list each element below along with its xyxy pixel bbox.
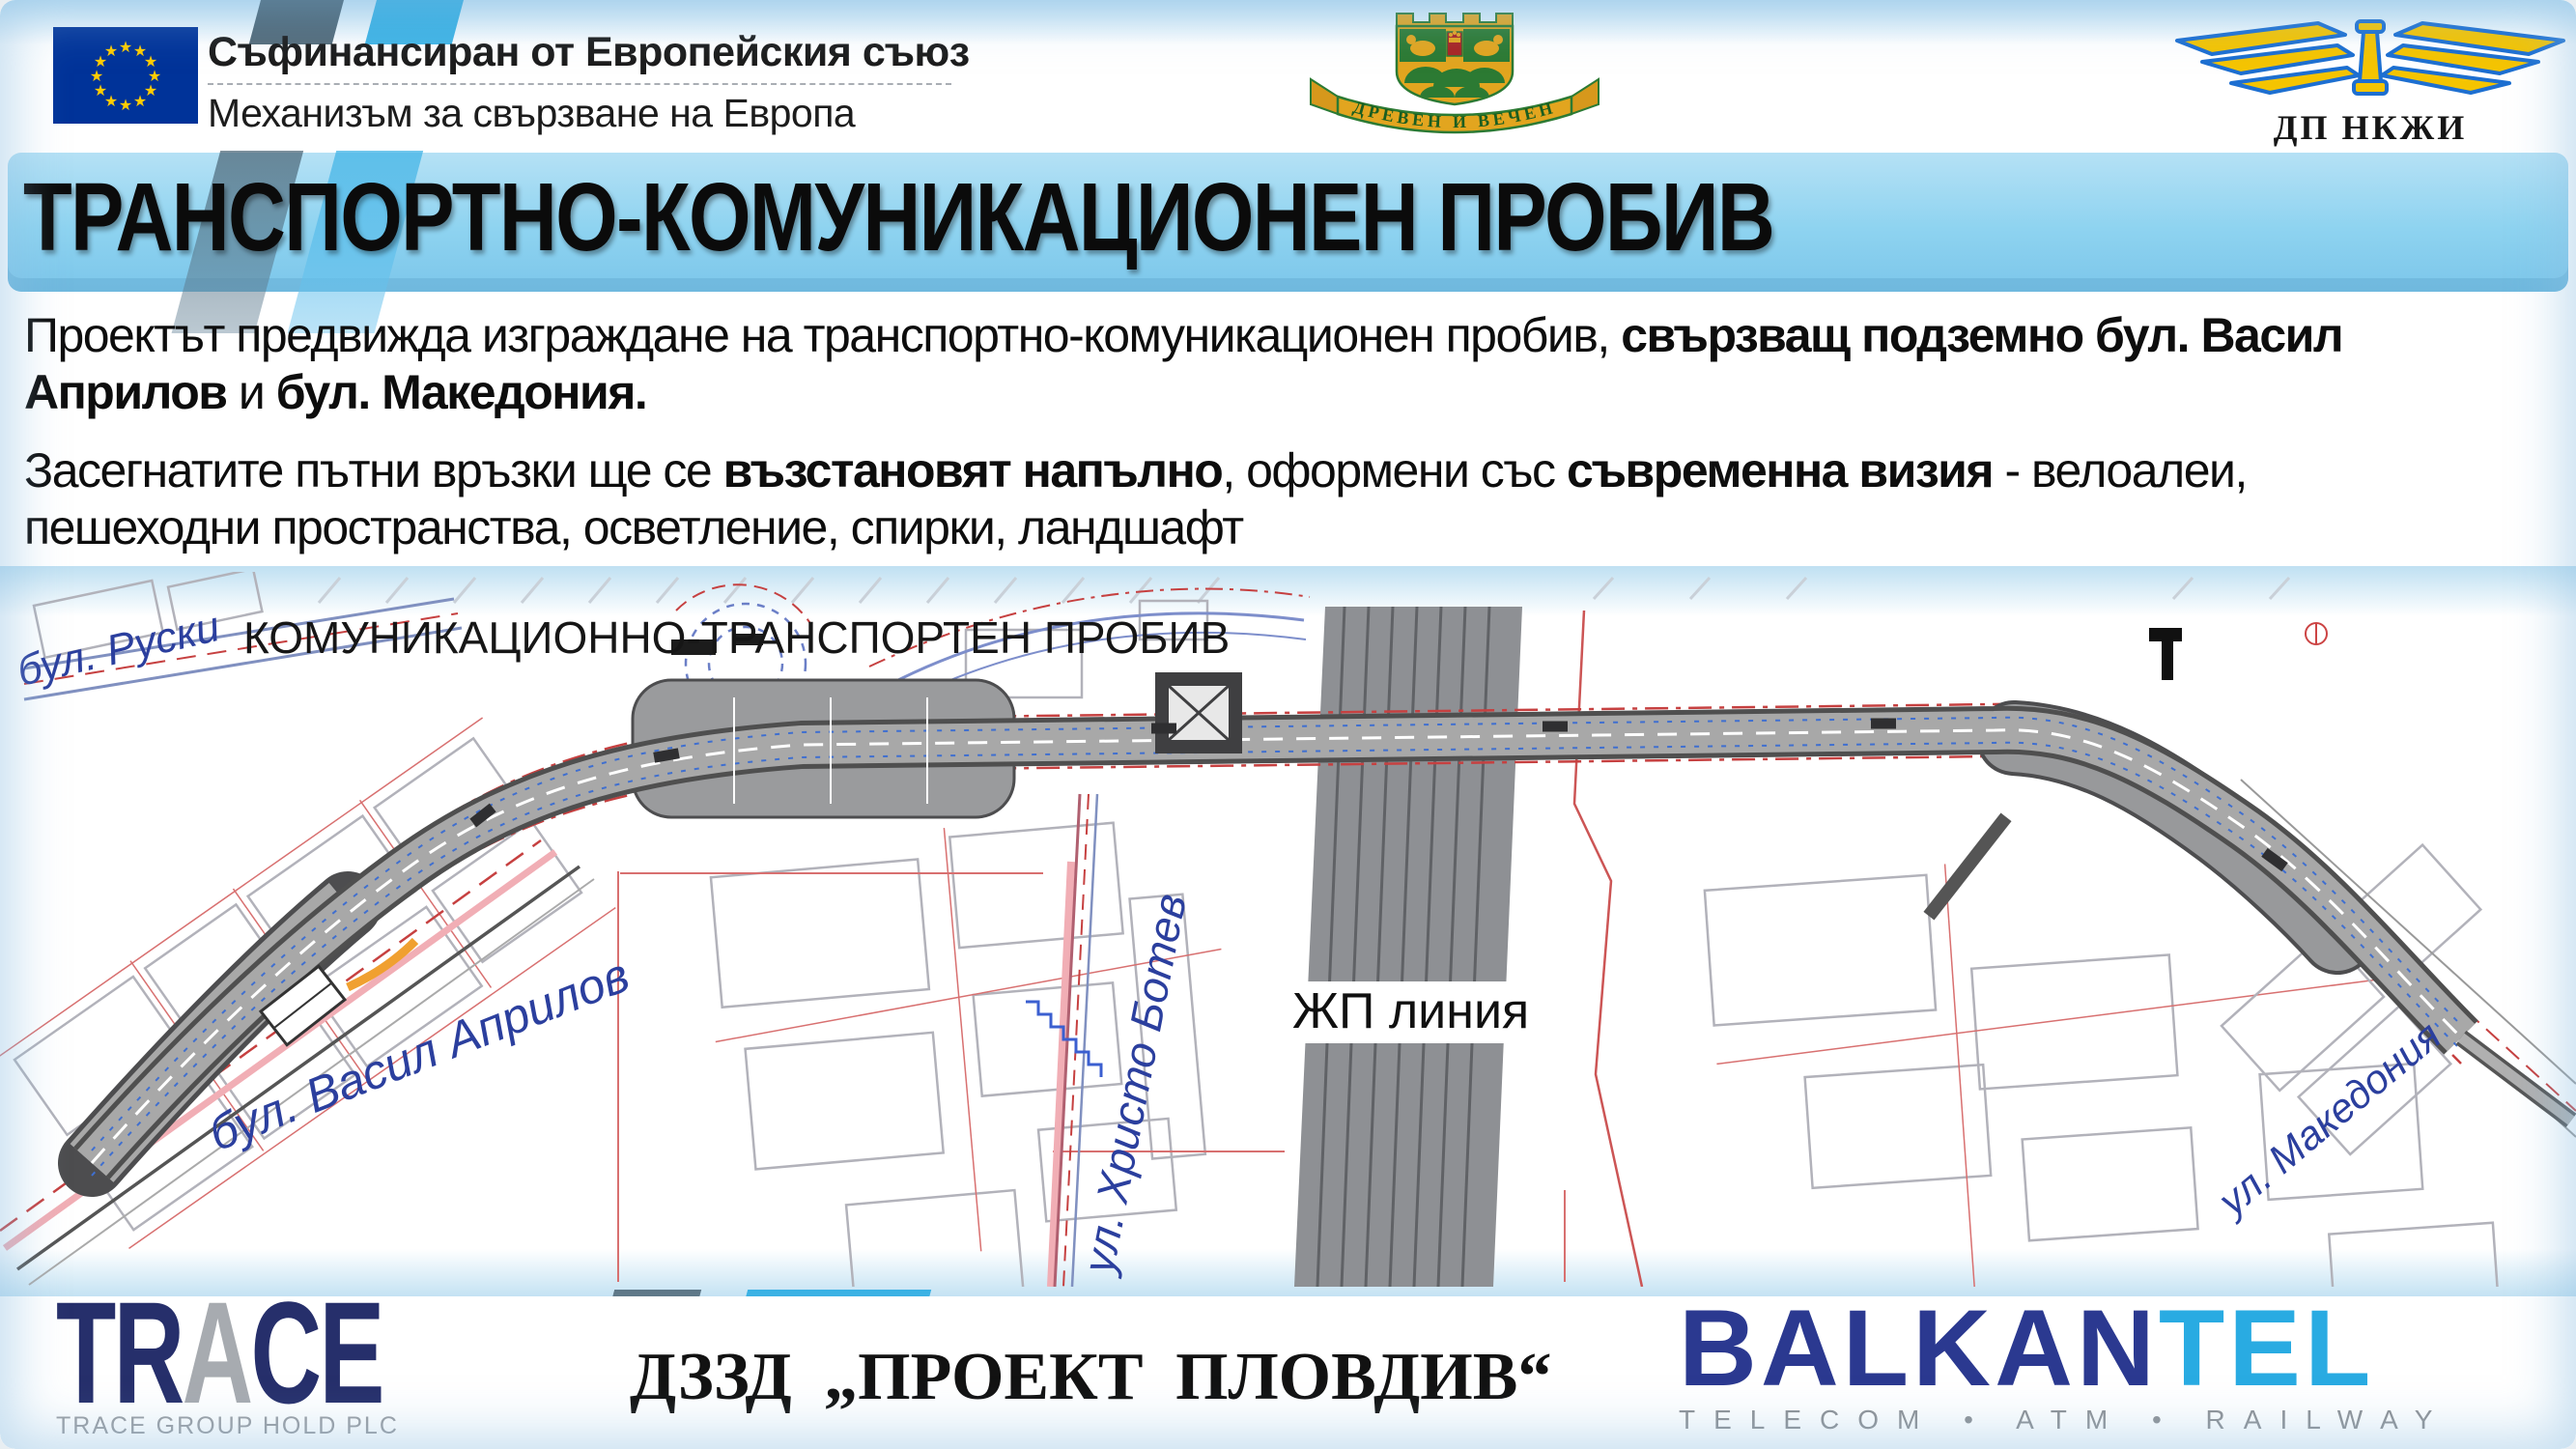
eu-funding-line2: Механизъм за свързване на Европа	[208, 91, 970, 136]
trace-logo-text: TRACE	[56, 1298, 382, 1406]
p2-run1: Засегнатите пътни връзки ще се	[24, 443, 723, 497]
plovdiv-shield	[1397, 14, 1513, 104]
p1-run5: бул. Македония.	[276, 365, 647, 419]
p2-run3: , оформени със	[1222, 443, 1567, 497]
balkantel-balkan: BALKAN	[1679, 1288, 2159, 1408]
trace-ce: CE	[250, 1271, 382, 1434]
nkji-wings-icon	[2171, 10, 2569, 102]
p2-run5: - велоалеи,	[1993, 443, 2247, 497]
eu-star-icon: ★	[104, 42, 118, 60]
p2-run6: пешеходни пространства, осветление, спир…	[24, 500, 1243, 554]
balkantel-logo: BALKANTEL TELECOM • ATM • RAILWAY	[1679, 1302, 2450, 1435]
p1-run1: Проектът предвижда изграждане на транспо…	[24, 308, 1621, 362]
trace-logo: TRACE TRACE GROUP HOLD PLC	[56, 1298, 536, 1440]
p2-run2: възстановят напълно	[723, 443, 1223, 497]
consortium-name: ДЗЗД „ПРОЕКТ ПЛОВДИВ“	[630, 1339, 1551, 1416]
eu-funding-text: Съфинансиран от Европейския съюз Механиз…	[208, 29, 970, 136]
eu-star-icon: ★	[133, 92, 147, 110]
eu-star-icon: ★	[119, 38, 132, 56]
plovdiv-coat-of-arms-icon: ДРЕВЕН И ВЕЧЕН	[1299, 4, 1610, 149]
map-hatch-marks	[319, 578, 2289, 603]
paragraph-1: Проектът предвижда изграждане на транспо…	[24, 307, 2555, 421]
eu-text-divider	[208, 83, 951, 85]
railway-corridor	[1294, 607, 1522, 1287]
paragraph-2: Засегнатите пътни връзки ще се възстанов…	[24, 442, 2555, 556]
footer: TRACE TRACE GROUP HOLD PLC ДЗЗД „ПРОЕКТ …	[0, 1296, 2576, 1449]
street-label-ruski: бул. Руски	[13, 603, 224, 696]
site-plan-drawing: ЖП линия КОМУНИКАЦИОННО-ТРАНСПОРТЕН ПРОБ…	[0, 572, 2576, 1287]
header: ★ ★ ★ ★ ★ ★ ★ ★ ★ ★ ★ ★ Съфинансиран от …	[0, 44, 2576, 151]
p1-run4: и	[226, 365, 275, 419]
body-text: Проектът предвижда изграждане на транспо…	[24, 307, 2555, 578]
eu-funding-line1: Съфинансиран от Европейския съюз	[208, 29, 970, 76]
eu-flag-icon: ★ ★ ★ ★ ★ ★ ★ ★ ★ ★ ★ ★	[53, 27, 198, 124]
eu-star-icon: ★	[119, 96, 132, 114]
nkji-label: ДП НКЖИ	[2171, 107, 2569, 148]
trace-a-pylon: A	[183, 1271, 251, 1434]
nkji-logo: ДП НКЖИ	[2171, 10, 2569, 148]
railway-label: ЖП линия	[1292, 983, 1529, 1039]
balkantel-subtitle: TELECOM • ATM • RAILWAY	[1679, 1405, 2450, 1435]
p1-run2: свързващ подземно бул. Васил	[1621, 308, 2342, 362]
balkantel-logo-text: BALKANTEL	[1679, 1302, 2450, 1395]
street-label-hristo-botev: ул. Христо Ботев	[1072, 890, 1196, 1280]
cadastre-center	[698, 805, 1250, 1287]
street-label-makedonia: ул. Македония	[2207, 1012, 2449, 1226]
survey-point-symbol	[2306, 623, 2327, 644]
trace-tr: TR	[56, 1271, 183, 1434]
map-title: КОМУНИКАЦИОННО-ТРАНСПОРТЕН ПРОБИВ	[243, 612, 1230, 663]
page-title: ТРАНСПОРТНО-КОМУНИКАЦИОНЕН ПРОБИВ	[23, 162, 1773, 273]
p2-run4: съвременна визия	[1567, 443, 1993, 497]
balkantel-tel: TEL	[2159, 1288, 2375, 1408]
slide: ТРАНСПОРТНО-КОМУНИКАЦИОНЕН ПРОБИВ ★ ★ ★ …	[0, 0, 2576, 1449]
p1-run3: Априлов	[24, 365, 226, 419]
site-plan-map: ЖП линия КОМУНИКАЦИОННО-ТРАНСПОРТЕН ПРОБ…	[0, 572, 2576, 1287]
